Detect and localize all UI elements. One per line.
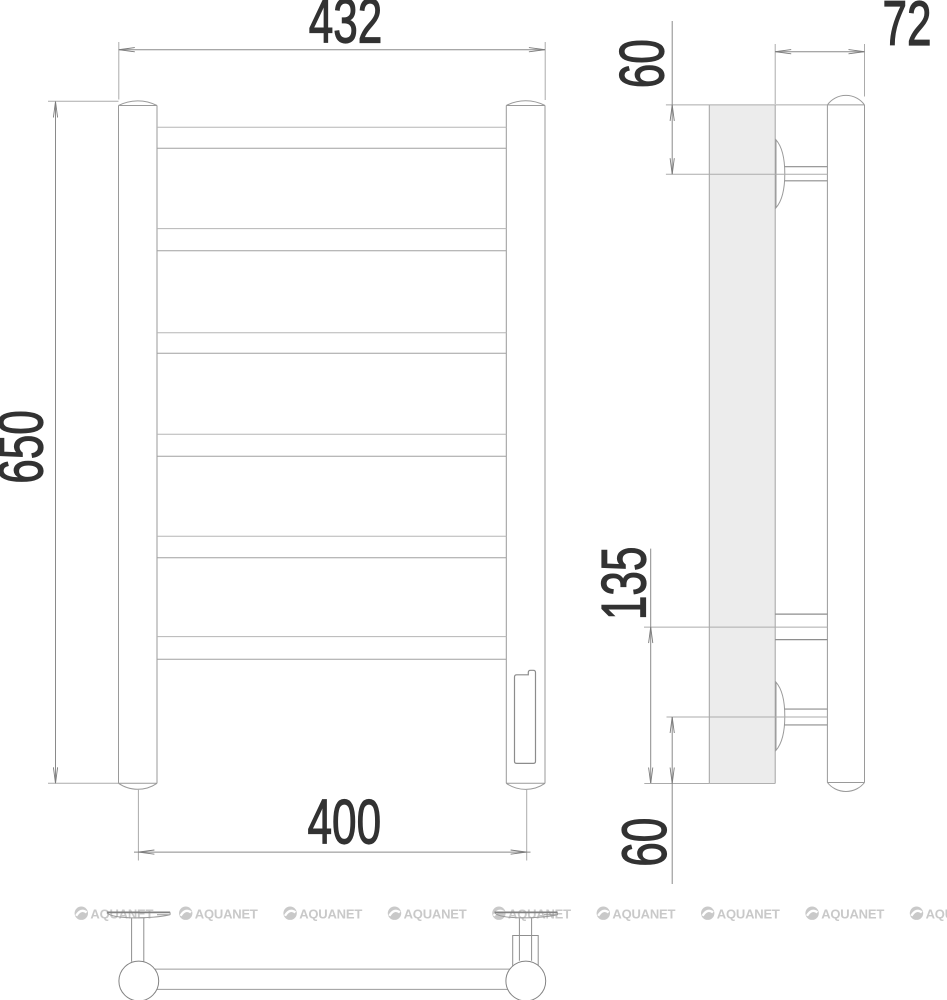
svg-text:AQUANET: AQUANET: [612, 906, 675, 921]
svg-text:135: 135: [589, 547, 660, 621]
svg-text:AQUANET: AQUANET: [508, 906, 571, 921]
svg-text:AQUANET: AQUANET: [404, 906, 467, 921]
svg-text:AQUANET: AQUANET: [926, 906, 947, 921]
svg-text:AQUANET: AQUANET: [299, 906, 362, 921]
svg-text:432: 432: [309, 0, 383, 57]
svg-text:650: 650: [0, 410, 56, 484]
svg-text:60: 60: [607, 39, 678, 88]
svg-text:AQUANET: AQUANET: [717, 906, 780, 921]
svg-text:72: 72: [882, 0, 931, 59]
svg-text:AQUANET: AQUANET: [821, 906, 884, 921]
svg-text:AQUANET: AQUANET: [195, 906, 258, 921]
svg-text:400: 400: [308, 787, 382, 858]
svg-text:60: 60: [609, 818, 680, 867]
